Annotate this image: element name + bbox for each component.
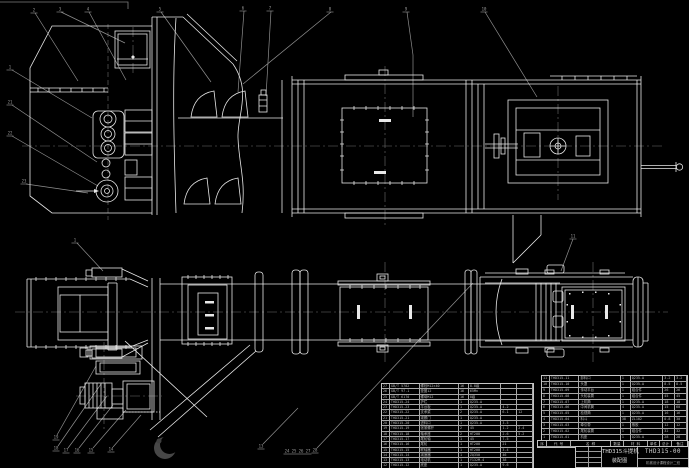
balloon-label: 26 [299, 448, 304, 453]
drawing-number-cell: THD315-00 机械设计课程设计二班 [638, 447, 688, 467]
balloon-label: 6 [242, 5, 245, 10]
balloon-label: 17 [64, 447, 69, 452]
balloon-label: 3 [59, 6, 62, 11]
balloon-label: 1 [74, 237, 77, 242]
balloon-label: 28 [313, 447, 318, 452]
balloon-label: 24 [285, 448, 290, 453]
balloon-label: 1 [9, 64, 12, 69]
balloon-label: 9 [405, 6, 408, 11]
balloon-label: 4 [87, 6, 90, 11]
drawing-subtitle: 装配图 [602, 457, 637, 466]
balloon-label: 15 [89, 447, 94, 452]
centerlines [15, 27, 668, 430]
bom-table-right: 11THD315-11卸料口1Q235-A3.23.210THD315-10头罩… [541, 375, 688, 442]
bom-row: 12THD315-12底座1Q235-A9.6 [382, 463, 533, 468]
balloon-label: 2 [33, 7, 36, 12]
top-view [30, 14, 683, 263]
balloon-label: 7 [269, 5, 272, 10]
bom-table-left: 27GB/T 5782螺栓M12×40168.8级26GB/T 97.1垫圈12… [381, 383, 534, 468]
balloon-label: 23 [22, 178, 27, 183]
drawing-note: 机械设计课程设计二班 [638, 459, 688, 467]
balloon-label: 13 [259, 443, 264, 448]
balloon-label: 25 [292, 448, 297, 453]
filled-details [94, 55, 621, 338]
balloon-label: 8 [329, 6, 332, 11]
sheet-border-fragment [0, 2, 128, 9]
drawing-title-cell: THD315斗提机 装配图 [602, 447, 638, 467]
balloon-label: 5 [159, 6, 162, 11]
balloon-label: 14 [109, 446, 114, 451]
balloon-label: 11 [571, 233, 576, 238]
balloon-label: 16 [75, 447, 80, 452]
logo-watermark [154, 435, 179, 459]
balloon-label: 22 [8, 130, 13, 135]
title-block: THD315斗提机 装配图 THD315-00 机械设计课程设计二班 [575, 446, 689, 468]
drawing-title: THD315斗提机 [602, 447, 637, 457]
balloon-label: 21 [8, 99, 13, 104]
signature-grid [576, 447, 602, 467]
balloon-label: 27 [306, 448, 311, 453]
balloon-label: 10 [482, 6, 487, 11]
balloon-label: 19 [54, 434, 59, 439]
drawing-number: THD315-00 [638, 447, 688, 459]
cad-sheet: 2345678910121222311119181716151413242526… [0, 0, 689, 468]
balloon-label: 18 [54, 445, 59, 450]
